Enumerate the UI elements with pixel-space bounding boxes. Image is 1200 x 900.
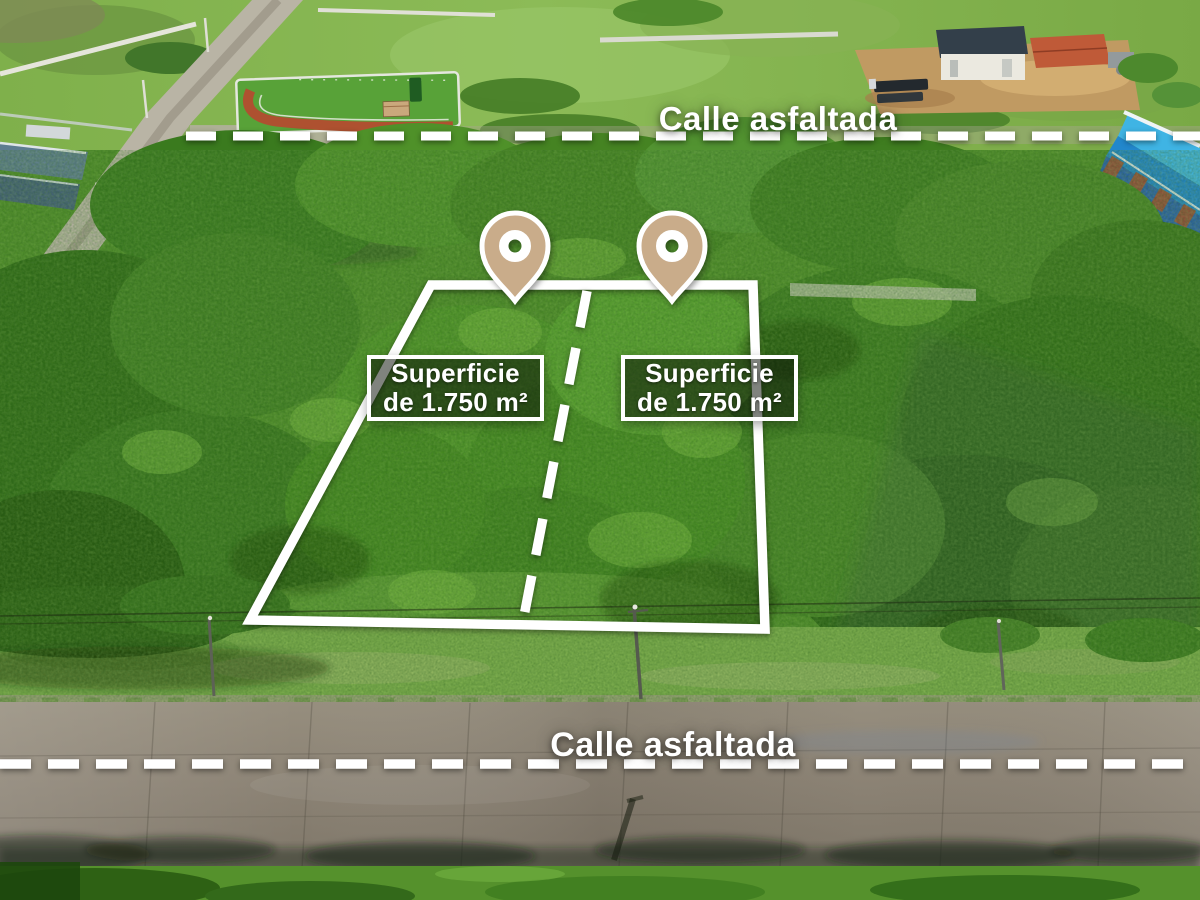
parcel-area-text-line1: Superficie: [391, 359, 520, 388]
street-label-bottom-text: Calle asfaltada: [550, 726, 796, 764]
parcel-area-label-right: Superficie de 1.750 m²: [621, 355, 798, 421]
aerial-photo-stage: Calle asfaltada Calle asfaltada Superfic…: [0, 0, 1200, 900]
street-label-bottom: Calle asfaltada: [550, 726, 796, 765]
parcel-area-text-line2: de 1.750 m²: [637, 388, 782, 417]
street-label-top: Calle asfaltada: [659, 100, 898, 138]
street-label-top-text: Calle asfaltada: [659, 100, 898, 137]
parcel-divider-line: [524, 291, 587, 616]
parcel-area-text-line1: Superficie: [645, 359, 774, 388]
parcel-area-label-left: Superficie de 1.750 m²: [367, 355, 544, 421]
parcel-boundary-outline: [250, 285, 765, 629]
parcel-area-text-line2: de 1.750 m²: [383, 388, 528, 417]
annotation-overlay: [0, 0, 1200, 900]
